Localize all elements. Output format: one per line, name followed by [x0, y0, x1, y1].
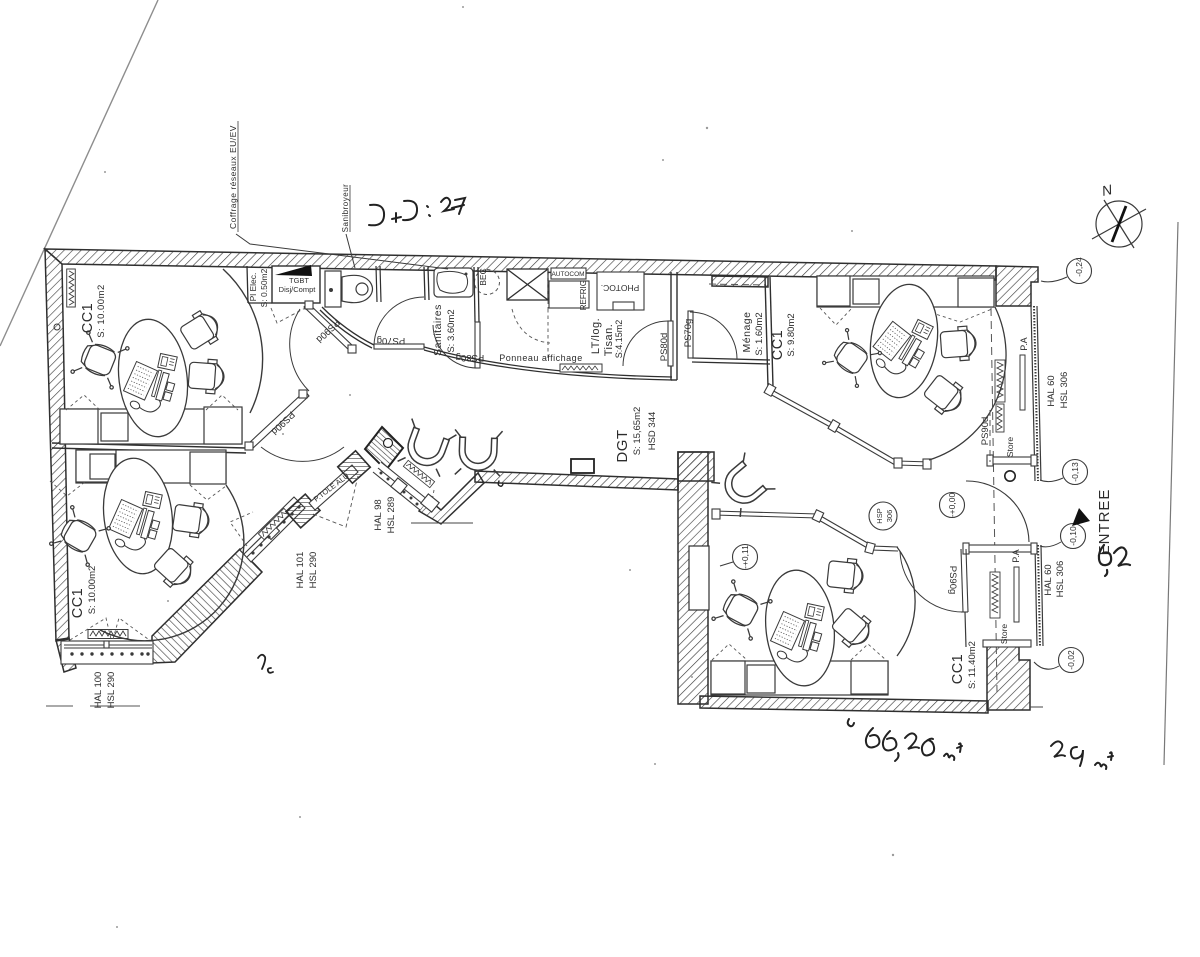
svg-text:PHOTOC.: PHOTOC.	[601, 283, 640, 293]
svg-text:-0,10: -0,10	[1068, 526, 1078, 546]
svg-text:Sanibroyeur: Sanibroyeur	[341, 184, 350, 233]
svg-text:S: 9.80m2: S: 9.80m2	[786, 313, 797, 356]
svg-text:DGT: DGT	[614, 429, 631, 462]
svg-text:Store: Store	[1005, 437, 1015, 458]
svg-text:Store: Store	[999, 624, 1009, 645]
svg-text:BEC: BEC	[478, 268, 488, 285]
svg-text:Ménage: Ménage	[741, 312, 753, 353]
svg-text:PS90g: PS90g	[947, 566, 958, 595]
svg-text:-+0,00: -+0,00	[947, 493, 957, 518]
svg-text:HSL 306: HSL 306	[1055, 561, 1066, 598]
svg-text:HAL 100: HAL 100	[93, 672, 104, 709]
svg-text:PS90d: PS90d	[980, 417, 991, 446]
svg-text:S: 11.40m2: S: 11.40m2	[967, 641, 978, 689]
svg-text:PS80g: PS80g	[456, 352, 485, 363]
svg-text:HSD 344: HSD 344	[647, 412, 658, 451]
svg-text:P.A: P.A	[1019, 337, 1029, 350]
svg-text:306: 306	[885, 510, 894, 523]
svg-text:TGBT: TGBT	[289, 276, 309, 285]
svg-text:Disj/Compt: Disj/Compt	[279, 285, 317, 294]
svg-text:S:4.15m2: S:4.15m2	[614, 320, 624, 359]
svg-text:CC1: CC1	[80, 303, 96, 334]
svg-text:HSP: HSP	[875, 508, 884, 523]
svg-text:HSL 306: HSL 306	[1059, 372, 1070, 409]
svg-text:CC1: CC1	[950, 654, 966, 685]
svg-text:HAL 98: HAL 98	[373, 499, 384, 530]
svg-text:S: 3.60m2: S: 3.60m2	[446, 309, 457, 352]
svg-text:HSL 289: HSL 289	[386, 497, 397, 534]
svg-text:HAL 60: HAL 60	[1043, 564, 1054, 595]
svg-text:PS80d: PS80d	[659, 333, 670, 362]
svg-text:Pl Elec.: Pl Elec.	[248, 273, 258, 302]
svg-text:Sanitaires: Sanitaires	[432, 304, 444, 356]
svg-text:S: 15,65m2: S: 15,65m2	[632, 407, 643, 456]
svg-text:HAL 60: HAL 60	[1046, 375, 1057, 406]
svg-text:S: 10.00m2: S: 10.00m2	[96, 284, 107, 338]
svg-text:HSL 290: HSL 290	[308, 552, 319, 589]
svg-text:Ponneau affichage: Ponneau affichage	[499, 353, 582, 363]
svg-text:HSL 290: HSL 290	[106, 672, 117, 709]
svg-text:LT/log.: LT/log.	[590, 318, 602, 354]
svg-text:PS70g: PS70g	[683, 319, 694, 348]
svg-text:PS70g: PS70g	[377, 335, 406, 346]
svg-text:-+0,11: -+0,11	[740, 545, 750, 569]
svg-text:S: 10.00m2: S: 10.00m2	[87, 566, 98, 615]
svg-text:REFRIG.: REFRIG.	[579, 278, 588, 310]
svg-text:CC1: CC1	[70, 588, 86, 619]
svg-text:S: 1.60m2: S: 1.60m2	[754, 312, 765, 355]
svg-text:S: 0.50m2: S: 0.50m2	[259, 268, 269, 307]
svg-text:-0,02: -0,02	[1066, 650, 1076, 670]
svg-text:Coffrage réseaux EU/EV: Coffrage réseaux EU/EV	[228, 125, 238, 229]
svg-text:CC1: CC1	[770, 330, 786, 361]
svg-text:P.A: P.A	[1011, 549, 1021, 562]
svg-text:AUTOCOM: AUTOCOM	[551, 271, 584, 278]
svg-text:HAL 101: HAL 101	[295, 552, 306, 589]
svg-text:-0,24: -0,24	[1074, 257, 1084, 277]
svg-text:-0,13: -0,13	[1070, 462, 1080, 482]
